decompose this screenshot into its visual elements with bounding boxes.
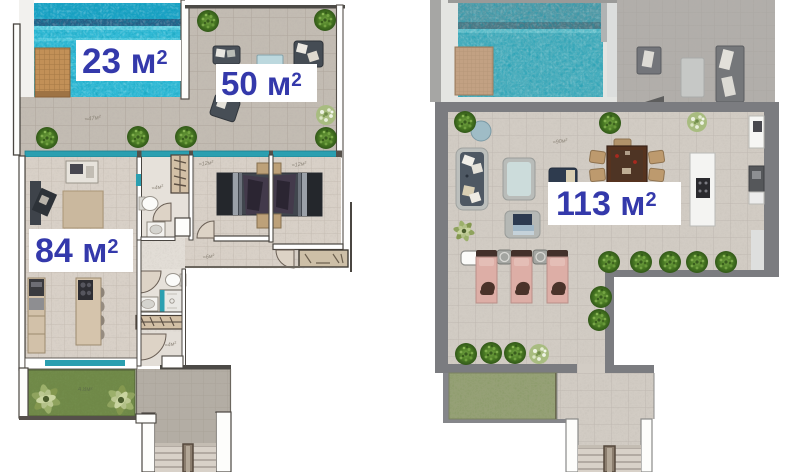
svg-text:4.8м²: 4.8м² <box>78 387 92 393</box>
svg-text:84 м2: 84 м2 <box>35 232 119 270</box>
svg-text:23 м2: 23 м2 <box>82 42 168 81</box>
svg-text:113 м2: 113 м2 <box>556 185 657 223</box>
svg-text:50 м2: 50 м2 <box>221 65 302 102</box>
